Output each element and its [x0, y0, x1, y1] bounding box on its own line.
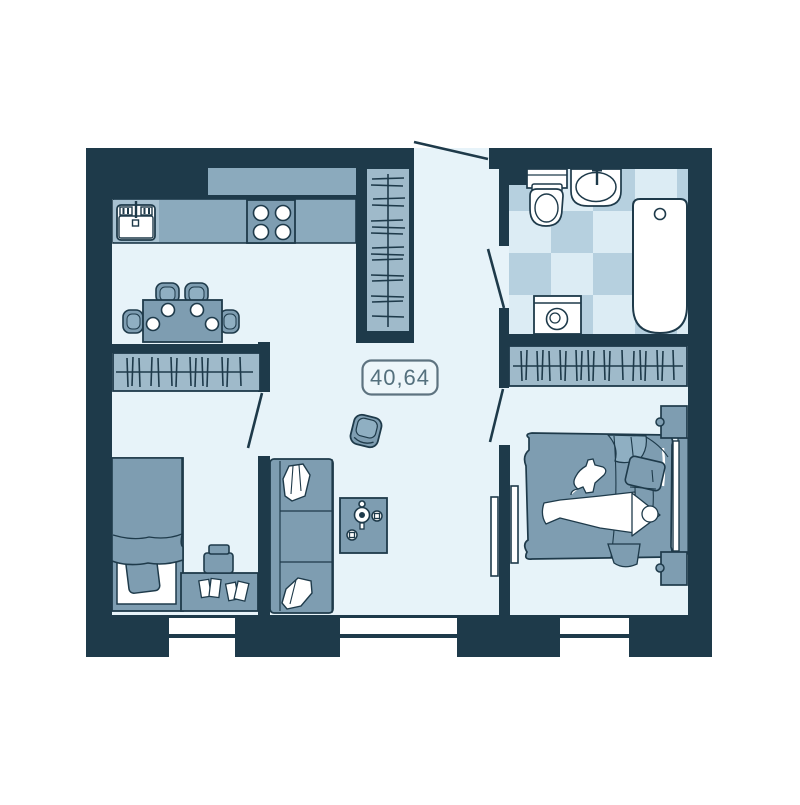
svg-text:40,64: 40,64	[370, 365, 430, 390]
